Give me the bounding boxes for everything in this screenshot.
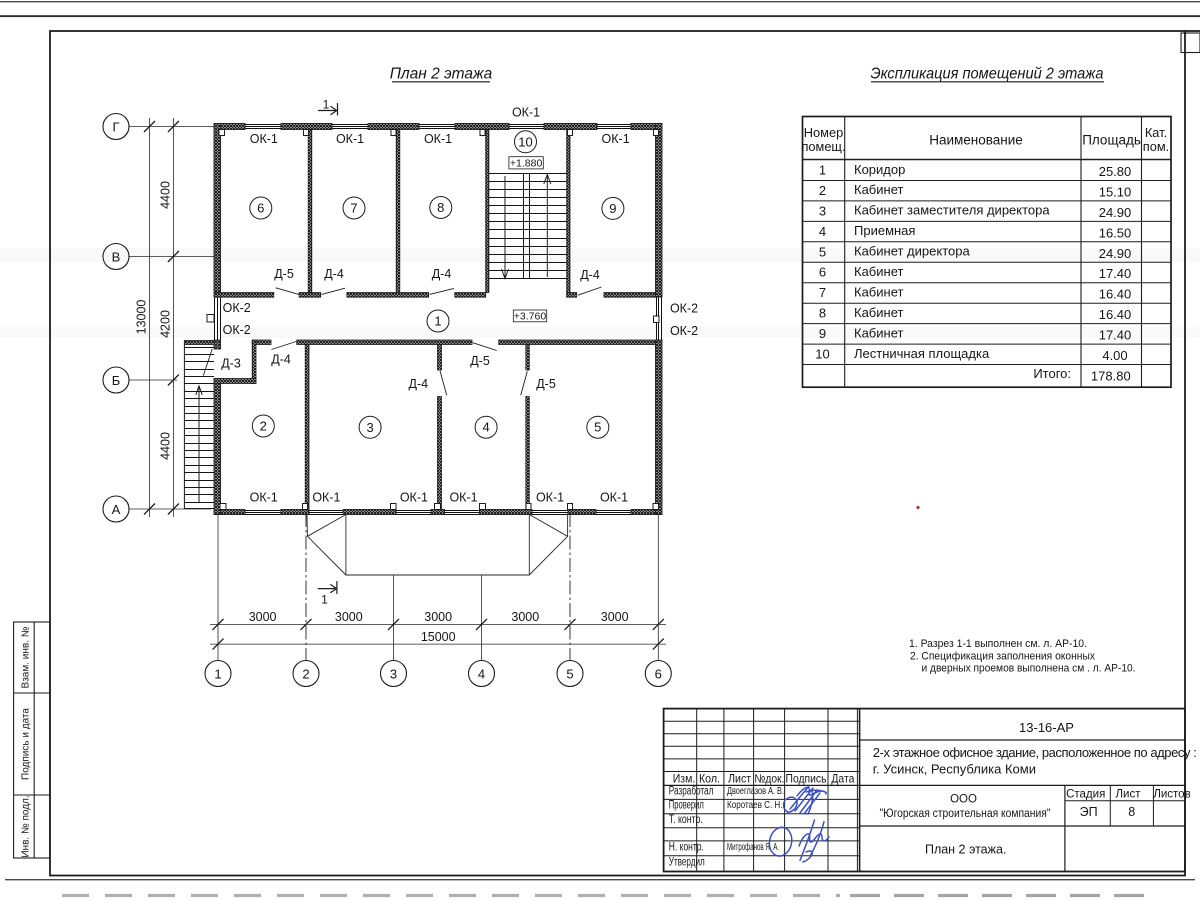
svg-text:4200: 4200 <box>158 310 172 338</box>
svg-text:Д-5: Д-5 <box>470 354 490 368</box>
svg-text:3000: 3000 <box>249 610 277 624</box>
svg-text:План 2 этажа: План 2 этажа <box>390 66 493 83</box>
svg-text:Д-3: Д-3 <box>221 357 241 371</box>
svg-text:ОК-1: ОК-1 <box>449 491 477 505</box>
svg-text:16.50: 16.50 <box>1099 225 1132 240</box>
svg-text:Подпись и дата: Подпись и дата <box>21 708 32 780</box>
svg-text:Н. контр.: Н. контр. <box>669 841 704 853</box>
svg-text:Двоеглазов А. В.: Двоеглазов А. В. <box>727 785 784 797</box>
svg-text:3000: 3000 <box>601 610 629 624</box>
svg-text:Кабинет заместителя директора: Кабинет заместителя директора <box>854 203 1050 218</box>
svg-text:План 2 этажа.: План 2 этажа. <box>925 842 1006 856</box>
svg-text:Коридор: Коридор <box>854 162 905 177</box>
svg-text:Б: Б <box>112 373 121 388</box>
svg-text:Д-5: Д-5 <box>536 377 556 391</box>
svg-text:Листов: Листов <box>1153 788 1190 800</box>
svg-text:4.00: 4.00 <box>1102 348 1127 363</box>
svg-text:Д-5: Д-5 <box>274 267 294 281</box>
svg-text:16.40: 16.40 <box>1099 307 1132 322</box>
svg-text:15.10: 15.10 <box>1099 184 1132 199</box>
svg-text:Д-4: Д-4 <box>580 268 600 282</box>
svg-text:3: 3 <box>366 420 373 435</box>
svg-text:8: 8 <box>1128 805 1135 819</box>
svg-text:ОК-1: ОК-1 <box>536 491 564 505</box>
svg-text:Наименование: Наименование <box>929 133 1023 148</box>
svg-text:А: А <box>112 502 121 517</box>
svg-text:Итого:: Итого: <box>1033 366 1071 381</box>
svg-text:Кол.: Кол. <box>699 771 720 785</box>
svg-text:4: 4 <box>819 224 826 239</box>
svg-text:5: 5 <box>594 420 601 435</box>
svg-text:4400: 4400 <box>158 181 172 209</box>
svg-text:Т. контр.: Т. контр. <box>669 814 703 826</box>
svg-text:№док.: №док. <box>754 771 784 785</box>
svg-text:ОК-1: ОК-1 <box>602 132 630 146</box>
svg-text:Д-4: Д-4 <box>324 267 344 281</box>
svg-text:и дверных проемов выполнена см: и дверных проемов выполнена см . л. АР-1… <box>922 663 1136 675</box>
svg-text:Лист: Лист <box>1116 788 1142 800</box>
svg-text:Утвердил: Утвердил <box>669 857 705 869</box>
svg-text:В: В <box>112 249 121 264</box>
svg-text:1. Разрез 1-1 выполнен см. л.: 1. Разрез 1-1 выполнен см. л. АР-10. <box>909 638 1087 650</box>
svg-text:Проверил: Проверил <box>669 800 704 812</box>
svg-text:17.40: 17.40 <box>1099 328 1132 343</box>
svg-text:ОК-1: ОК-1 <box>250 491 278 505</box>
svg-text:ОК-1: ОК-1 <box>424 132 452 146</box>
svg-text:7: 7 <box>819 285 826 300</box>
svg-text:ОК-2: ОК-2 <box>223 323 251 337</box>
svg-text:ОК-1: ОК-1 <box>512 106 540 120</box>
svg-text:2-х этажное офисное здание, ра: 2-х этажное офисное здание, расположенно… <box>873 745 1197 760</box>
svg-text:3000: 3000 <box>511 610 539 624</box>
svg-text:3: 3 <box>819 203 826 218</box>
svg-text:ОК-1: ОК-1 <box>400 491 428 505</box>
svg-text:"Югорская строительная компани: "Югорская строительная компания" <box>880 808 1051 820</box>
svg-text:ООО: ООО <box>950 793 977 805</box>
svg-text:13-16-АР: 13-16-АР <box>1019 720 1074 735</box>
svg-text:6: 6 <box>257 201 264 216</box>
svg-text:6: 6 <box>655 666 662 681</box>
svg-text:178.80: 178.80 <box>1091 369 1131 384</box>
svg-text:15000: 15000 <box>421 630 456 644</box>
svg-text:9: 9 <box>819 326 826 341</box>
svg-text:5: 5 <box>819 244 826 259</box>
svg-text:4: 4 <box>482 420 489 435</box>
svg-text:Кабинет: Кабинет <box>854 182 903 197</box>
svg-text:2: 2 <box>819 183 826 198</box>
svg-text:3000: 3000 <box>424 610 452 624</box>
svg-text:1: 1 <box>323 97 330 111</box>
svg-text:2. Спецификация заполнения око: 2. Спецификация заполнения оконных <box>910 650 1095 662</box>
svg-text:Кат.: Кат. <box>1145 125 1167 140</box>
svg-text:ОК-2: ОК-2 <box>670 301 698 315</box>
svg-text:Инв. № подл.: Инв. № подл. <box>21 795 32 857</box>
svg-text:25.80: 25.80 <box>1099 164 1132 179</box>
svg-text:Взам. инв. №: Взам. инв. № <box>21 626 32 688</box>
svg-text:Площадь: Площадь <box>1082 133 1141 148</box>
svg-text:ОК-2: ОК-2 <box>670 324 698 338</box>
svg-text:1: 1 <box>214 666 221 681</box>
svg-text:10: 10 <box>518 134 532 149</box>
svg-text:17.40: 17.40 <box>1099 266 1132 281</box>
svg-text:Д-4: Д-4 <box>409 377 429 391</box>
svg-text:2: 2 <box>260 419 267 434</box>
svg-text:г. Усинск, Республика Коми: г. Усинск, Республика Коми <box>873 761 1036 776</box>
svg-text:Г: Г <box>112 119 119 134</box>
svg-text:16.40: 16.40 <box>1099 287 1132 302</box>
svg-text:ЭП: ЭП <box>1080 805 1098 819</box>
svg-text:ОК-1: ОК-1 <box>600 491 628 505</box>
svg-text:24.90: 24.90 <box>1099 246 1132 261</box>
svg-text:ОК-1: ОК-1 <box>312 491 340 505</box>
svg-text:1: 1 <box>819 163 826 178</box>
svg-text:Разработал: Разработал <box>669 786 714 798</box>
svg-text:Д-4: Д-4 <box>432 267 452 281</box>
svg-text:3000: 3000 <box>335 610 363 624</box>
svg-text:Номер: Номер <box>804 125 843 140</box>
svg-text:24.90: 24.90 <box>1099 205 1132 220</box>
svg-text:Приемная: Приемная <box>854 223 915 238</box>
svg-text:1: 1 <box>434 314 441 329</box>
svg-text:10: 10 <box>815 347 829 362</box>
svg-text:Подпись: Подпись <box>786 771 827 785</box>
svg-text:2: 2 <box>302 666 309 681</box>
svg-text:13000: 13000 <box>135 300 149 335</box>
svg-text:4400: 4400 <box>158 432 172 460</box>
svg-text:4: 4 <box>478 666 485 681</box>
svg-text:Кабинет: Кабинет <box>854 285 903 300</box>
svg-text:ОК-1: ОК-1 <box>336 132 364 146</box>
svg-text:ОК-2: ОК-2 <box>223 301 251 315</box>
svg-text:5: 5 <box>566 666 573 681</box>
svg-text:Лист: Лист <box>728 771 751 785</box>
svg-text:Лестничная площадка: Лестничная площадка <box>854 346 990 361</box>
svg-text:6: 6 <box>819 265 826 280</box>
svg-text:Кабинет директора: Кабинет директора <box>854 244 970 259</box>
svg-text:пом.: пом. <box>1143 139 1169 154</box>
svg-text:помещ.: помещ. <box>801 139 845 154</box>
svg-text:+1.880: +1.880 <box>510 157 543 169</box>
svg-text:3: 3 <box>390 666 397 681</box>
svg-text:Кабинет: Кабинет <box>854 325 903 340</box>
svg-text:Кабинет: Кабинет <box>854 305 903 320</box>
svg-text:7: 7 <box>350 201 357 216</box>
svg-text:9: 9 <box>609 201 616 216</box>
svg-text:8: 8 <box>819 306 826 321</box>
svg-text:1: 1 <box>321 593 328 607</box>
svg-text:Кабинет: Кабинет <box>854 264 903 279</box>
svg-text:Стадия: Стадия <box>1066 788 1105 800</box>
svg-text:ОК-1: ОК-1 <box>250 132 278 146</box>
svg-text:Д-4: Д-4 <box>271 353 291 367</box>
svg-text:+3.760: +3.760 <box>514 310 547 322</box>
svg-text:Экспликация помещений 2 этажа: Экспликация помещений 2 этажа <box>871 66 1104 83</box>
svg-text:8: 8 <box>437 200 444 215</box>
svg-text:Дата: Дата <box>831 771 854 785</box>
svg-text:Изм.: Изм. <box>673 771 696 785</box>
svg-text:Коротаев С. Н.: Коротаев С. Н. <box>727 799 783 811</box>
